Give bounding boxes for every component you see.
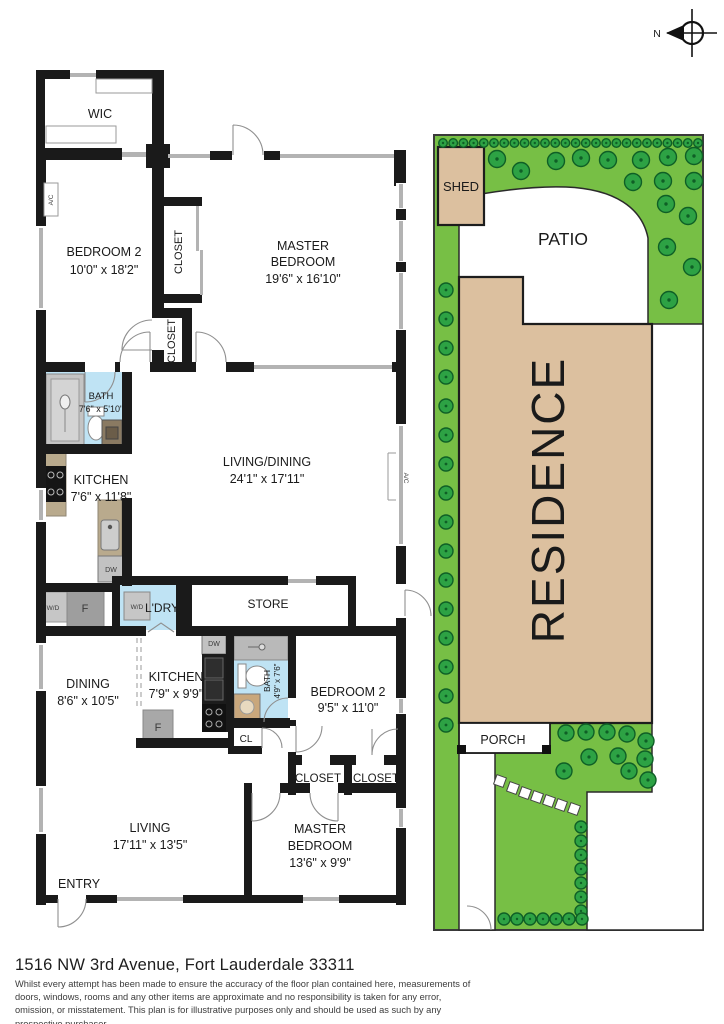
room-dims-living: 17'11" x 13'5" <box>113 838 188 852</box>
room-label-dining: DINING <box>66 677 110 691</box>
dw-label-top: DW <box>105 567 117 574</box>
room-label-closet-top2: CLOSET <box>166 319 178 363</box>
room-dims-living-dining: 24'1" x 17'11" <box>230 472 305 486</box>
room-label-living: LIVING <box>130 821 171 835</box>
room-label-wic: WIC <box>88 107 112 121</box>
room-label-bath-bottom: BATH <box>262 670 272 692</box>
room-dims-bath-top: 7'6" x 5'10" <box>79 404 123 414</box>
disclaimer-text: Whilst every attempt has been made to en… <box>15 978 473 1024</box>
room-dims-kitchen-top: 7'6" x 11'8" <box>71 490 132 504</box>
room-dims-master-bottom: 13'6" x 9'9" <box>289 856 351 870</box>
residence-label: RESIDENCE <box>522 357 574 643</box>
room-label-kitchen-top: KITCHEN <box>74 473 129 487</box>
wd-label-left: W/D <box>47 605 60 612</box>
ac-label-right: A/C <box>402 473 409 484</box>
floorplan-page: SHED PATIO PORCH RESIDENCE N <box>0 0 724 1024</box>
room-label-cl: CL <box>240 734 253 745</box>
room-label-closet-bottom1: CLOSET <box>295 773 341 785</box>
footer: 1516 NW 3rd Avenue, Fort Lauderdale 3331… <box>15 956 485 1024</box>
site-plan: SHED PATIO PORCH RESIDENCE <box>434 135 703 930</box>
room-dims-bath-bottom: 4'9" x 7'6" <box>273 663 282 698</box>
walkway <box>459 753 495 930</box>
compass-icon <box>666 9 717 57</box>
room-label-bath-top: BATH <box>89 391 114 402</box>
stove-icon <box>44 466 66 502</box>
room-dims-master-top: 19'6" x 16'10" <box>265 272 341 286</box>
room-label-kitchen-bottom: KITCHEN <box>149 670 204 684</box>
north-arrow-icon <box>666 25 684 41</box>
shed-label: SHED <box>443 179 479 194</box>
porch-post-icon <box>457 745 466 754</box>
room-label-closet-bottom2: CLOSET <box>353 773 399 785</box>
room-dims-dining: 8'6" x 10'5" <box>57 694 119 708</box>
room-label-closet-top1: CLOSET <box>173 230 185 274</box>
porch-post-icon <box>542 745 551 754</box>
room-label-store: STORE <box>247 597 288 611</box>
walls <box>36 70 406 905</box>
room-label-bedroom2-top: BEDROOM 2 <box>66 245 141 259</box>
room-label-entry: ENTRY <box>58 877 101 891</box>
ac-label-left: A/C <box>48 194 55 205</box>
ac-unit-icon <box>388 453 396 500</box>
toilet-icon <box>238 664 246 688</box>
room-label-bedroom2-bottom: BEDROOM 2 <box>310 685 385 699</box>
room-label-master-bottom-2: BEDROOM <box>288 839 353 853</box>
room-label-living-dining: LIVING/DINING <box>223 455 311 469</box>
room-label-master-bottom-1: MASTER <box>294 822 346 836</box>
room-dims-kitchen-bottom: 7'9" x 9'9" <box>149 687 204 701</box>
stove-icon <box>202 704 226 732</box>
sink-icon <box>101 520 119 550</box>
room-dims-bedroom2-top: 10'0" x 18'2" <box>70 263 139 277</box>
north-label: N <box>653 28 661 40</box>
room-label-master-top-2: BEDROOM <box>271 255 336 269</box>
fridge-label-bottom: F <box>155 722 162 734</box>
porch-label: PORCH <box>480 733 525 747</box>
plan-canvas: SHED PATIO PORCH RESIDENCE N <box>0 0 724 1024</box>
fridge-label-top: F <box>82 603 89 615</box>
patio-label: PATIO <box>538 229 588 249</box>
wd-label-laundry: W/D <box>131 604 144 611</box>
address-title: 1516 NW 3rd Avenue, Fort Lauderdale 3331… <box>15 956 485 975</box>
floor-plan: WIC BEDROOM 2 10'0" x 18'2" CLOSET CLOSE… <box>36 70 431 927</box>
room-label-master-top-1: MASTER <box>277 239 329 253</box>
room-label-ldry: L'DRY <box>145 601 179 615</box>
dw-label-bottom: DW <box>208 641 220 648</box>
room-dims-bedroom2-bottom: 9'5" x 11'0" <box>318 701 379 715</box>
